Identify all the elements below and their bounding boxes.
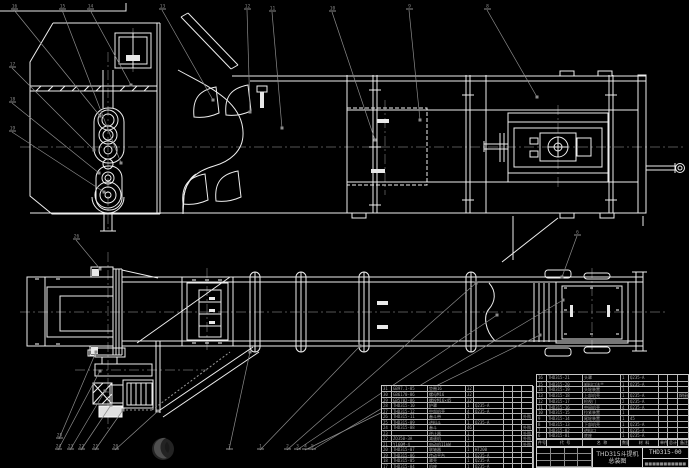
leader-line	[12, 68, 94, 150]
product-name: THD315斗提机	[596, 451, 638, 458]
leader-line	[260, 346, 360, 450]
section-break-line	[502, 216, 643, 262]
leader-arrow	[104, 390, 107, 393]
leader-line	[70, 391, 105, 450]
balloon-number: 8	[486, 4, 489, 10]
side-elevation-view	[30, 13, 685, 262]
leader-line	[562, 236, 577, 277]
bom-cell: 1	[466, 463, 474, 468]
balloon-number: 18	[10, 97, 16, 103]
leader-line	[229, 352, 250, 450]
bom-cell: 单件	[659, 440, 668, 446]
bom-cell: 备注	[678, 440, 689, 446]
bom-cell: 名 称	[583, 440, 621, 446]
bom-cell: 件号	[537, 440, 547, 446]
bom-cell	[522, 463, 534, 468]
discharge-chute	[181, 13, 238, 69]
leader-arrow	[120, 162, 123, 165]
bom-cell: Q235-A	[474, 463, 504, 468]
leader-line	[12, 103, 99, 173]
bom-cell: 数量	[621, 440, 629, 446]
bom-cell	[513, 463, 522, 468]
bom-cell	[678, 432, 689, 438]
bom-cell: THD315-04	[392, 463, 428, 468]
leader-line	[247, 10, 250, 112]
balloon-number: 11	[270, 6, 276, 12]
tail-section-plan	[486, 270, 647, 356]
bucket	[183, 174, 208, 204]
leader-arrow	[536, 96, 539, 99]
balloon-number: 22	[79, 444, 85, 450]
bucket	[226, 85, 251, 115]
balloon-number: 1	[259, 444, 262, 450]
leader-arrow	[539, 334, 542, 337]
balloon-number: 17	[10, 62, 16, 68]
balloon-number: 19	[10, 126, 16, 132]
leader-line	[487, 10, 537, 97]
bom-cell: THD315-01	[547, 432, 583, 438]
balloon-number: 25	[57, 433, 63, 439]
inlet-flange-box	[182, 277, 233, 346]
leader-arrow	[99, 370, 102, 373]
balloon-number: 21	[93, 444, 99, 450]
balloon-number: 9	[408, 4, 411, 10]
balloon-number: 6	[576, 230, 579, 236]
head-access-panel	[115, 33, 151, 68]
watermark-logo	[151, 435, 175, 463]
bom-cell: 机座	[428, 463, 466, 468]
leader-arrow	[496, 314, 499, 317]
balloon-number: 20	[113, 444, 119, 450]
leader-arrow	[212, 99, 215, 102]
bom-table-right: 16THD315-21头罩1Q235-A15THD315-20卸料口法兰1Q23…	[536, 374, 689, 439]
inspection-door	[347, 108, 427, 185]
takeup-device	[484, 113, 685, 182]
leader-arrow	[419, 119, 422, 122]
leader-arrow	[359, 345, 362, 348]
leader-arrow	[130, 84, 133, 87]
balloon-number: 3	[296, 444, 299, 450]
balloon-number: 15	[60, 4, 66, 10]
leader-line	[272, 12, 282, 128]
bom-cell: 代 号	[547, 440, 583, 446]
leader-arrow	[281, 127, 284, 130]
balloon-number: 10	[330, 6, 336, 12]
bom-table-left: 31GB97.1-85垫圈163230GB6170-86螺母M163229GB5…	[381, 385, 533, 468]
balloon-number: 12	[245, 4, 251, 10]
company-name: ■■■■■■■■■■■	[643, 459, 688, 468]
balloon-number: 5	[311, 444, 314, 450]
head-box-plan	[27, 277, 113, 346]
balloon-number: 23	[68, 444, 74, 450]
leader-line	[12, 132, 104, 192]
bom-cell: 1	[621, 432, 629, 438]
signature-grid	[537, 448, 593, 467]
bom-cell	[668, 432, 678, 438]
bom-cell: Q235-A	[629, 432, 659, 438]
leader-arrow	[122, 409, 125, 412]
bucket-section	[178, 70, 267, 214]
leader-arrow	[475, 282, 478, 285]
cad-viewport: 1615141312111098171819262524232221207123…	[0, 0, 689, 468]
bom-cell	[504, 463, 513, 468]
balloon-number: 7	[228, 444, 231, 450]
leader-line	[59, 352, 96, 439]
leader-arrow	[110, 404, 113, 407]
leader-arrow	[374, 139, 377, 142]
leader-line	[409, 10, 420, 120]
title-block: THD315斗提机 总装图 THD315-00 ■■■■■■■■■■■	[536, 447, 689, 468]
leader-arrow	[99, 115, 102, 118]
bom-header-row: 件号代 号名 称数量材 料单件总计备注	[536, 439, 689, 447]
leader-arrow	[157, 410, 160, 413]
bom-cell: 17	[382, 463, 392, 468]
sheet-title: 总装图	[608, 458, 626, 465]
leader-arrow	[93, 149, 96, 152]
leader-line	[81, 405, 111, 450]
leader-arrow	[95, 351, 98, 354]
leader-line	[76, 240, 100, 269]
bom-cell	[659, 432, 668, 438]
leader-arrow	[561, 276, 564, 279]
bom-cell: 6	[537, 432, 547, 438]
leader-arrow	[103, 191, 106, 194]
balloon-number: 26	[74, 234, 80, 240]
drive-unit-plan	[88, 341, 259, 417]
balloon-number: 13	[160, 4, 166, 10]
leader-arrow	[98, 172, 101, 175]
leader-arrow	[562, 299, 565, 302]
bom-cell: 底座	[583, 432, 621, 438]
leader-line	[14, 10, 100, 116]
bucket	[216, 171, 241, 201]
balloon-number: 24	[56, 444, 62, 450]
balloon-number: 2	[286, 444, 289, 450]
leader-arrow	[249, 111, 252, 114]
drawing-number: THD315-00	[643, 448, 688, 459]
centerlines	[20, 28, 686, 432]
casing-plan	[122, 277, 643, 346]
leader-line	[90, 10, 131, 85]
balloon-number: 16	[12, 4, 18, 10]
head-housing	[30, 23, 160, 214]
bom-cell: 总计	[668, 440, 678, 446]
leader-arrow	[99, 268, 102, 271]
takeup-screw-knob	[676, 164, 685, 173]
leader-arrow	[249, 351, 252, 354]
balloon-number: 4	[304, 444, 307, 450]
balloon-number: 14	[88, 4, 94, 10]
bom-cell: 材 料	[629, 440, 659, 446]
